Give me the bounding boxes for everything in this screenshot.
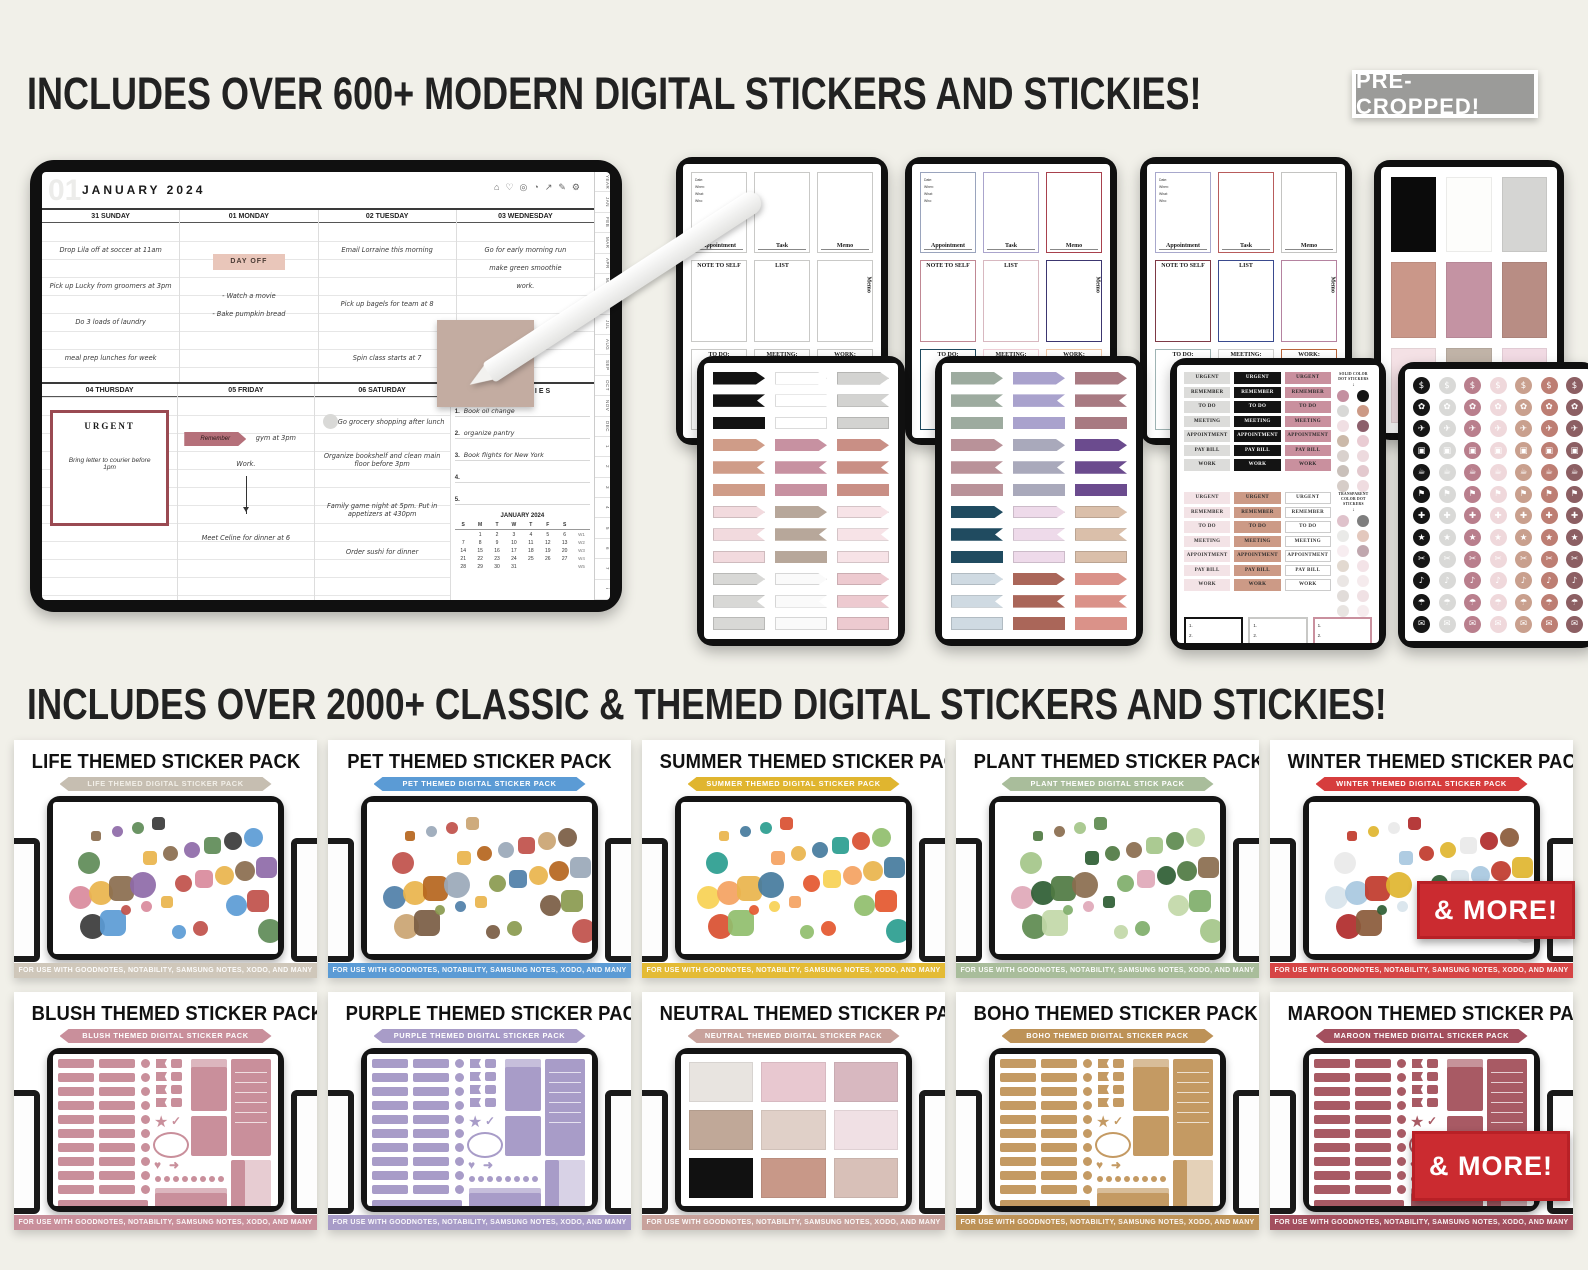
basket-icon: ☕ (1566, 464, 1583, 481)
sticker (1386, 872, 1412, 898)
side-tab: NOV (595, 396, 610, 416)
flag-sticker (951, 617, 1003, 630)
flag-sticker (775, 617, 827, 630)
pill-sticker (1041, 1087, 1077, 1096)
drinks-icon: ♪ (1413, 572, 1430, 589)
side-tablet-fragment (956, 838, 982, 962)
dot-sticker (1142, 1176, 1148, 1182)
basket-icon: ☕ (1464, 464, 1481, 481)
compatibility-bar: FOR USE WITH GOODNOTES, NOTABILITY, SAMS… (14, 963, 317, 978)
pill-sticker (1314, 1101, 1350, 1110)
dot-sticker (1357, 405, 1369, 417)
flag-sticker (713, 417, 765, 430)
sticker (457, 851, 471, 865)
sticker (1388, 822, 1400, 834)
square-sticky (1391, 262, 1436, 337)
pack-title: SUMMER THEMED STICKER PACK (660, 751, 928, 774)
dot-sticker (164, 1176, 170, 1182)
circle-sticker (455, 1101, 464, 1110)
sticker (141, 901, 152, 912)
sticky-template: NOTE TO SELF (1155, 260, 1211, 341)
circle-sticker (455, 1157, 464, 1166)
side-tablet-fragment (1233, 838, 1259, 962)
flag-sticker (156, 1098, 167, 1107)
dot-sticker (1106, 1176, 1112, 1182)
dot-stickers-note: TRANSPARENT COLOR DOT STICKERS (1335, 492, 1372, 507)
compatibility-bar: FOR USE WITH GOODNOTES, NOTABILITY, SAMS… (14, 1215, 317, 1230)
label-sticker: WORK (1234, 459, 1280, 471)
flag-sticker (1075, 573, 1127, 586)
pill-sticker (372, 1059, 408, 1068)
circle-sticker (141, 1087, 150, 1096)
flag-sticker (837, 484, 889, 497)
day-off-sticker: DAY OFF (213, 254, 285, 270)
dot-sticker (487, 1176, 493, 1182)
dot-sticker (1337, 605, 1349, 617)
sticker (132, 822, 144, 834)
dot-sticker (173, 1176, 179, 1182)
flag-sticker (1098, 1098, 1109, 1107)
sticker-pack-card: WINTER THEMED STICKER PACKWINTER THEMED … (1270, 740, 1573, 978)
label-sticker: URGENT (1234, 372, 1280, 384)
sticker (383, 886, 406, 909)
label-sticker: URGENT (1184, 372, 1230, 384)
pack-title: PET THEMED STICKER PACK (346, 751, 614, 774)
timer-icon: ◔ (533, 182, 544, 192)
check-sticker: ✓ (1113, 1114, 1123, 1128)
pack-tablet: ★✓♥➜ (361, 1048, 598, 1212)
star-icon: ★ (1566, 529, 1583, 546)
pill-sticker (1041, 1073, 1077, 1082)
side-tab: JUL (595, 315, 610, 335)
sticker (475, 896, 487, 908)
pill-sticker (413, 1171, 449, 1180)
drinks-icon: ♪ (1515, 572, 1532, 589)
luggage-icon: ▣ (1490, 442, 1507, 459)
pill-sticker (58, 1143, 94, 1152)
flag-sticker (775, 417, 827, 430)
flag-sticker (1075, 506, 1127, 519)
sticker (446, 822, 458, 834)
sticker-pack-card: SUMMER THEMED STICKER PACKSUMMER THEMED … (642, 740, 945, 978)
sticker (172, 925, 186, 939)
dot-sticker (1337, 480, 1349, 492)
sticker (1408, 817, 1421, 830)
star-sticker: ★ (154, 1112, 168, 1132)
compatibility-bar: FOR USE WITH GOODNOTES, NOTABILITY, SAMS… (1270, 963, 1573, 978)
heart-icon: ♡ (505, 182, 519, 192)
sticker (121, 905, 131, 915)
flag-sticker (1075, 461, 1127, 474)
sticker-collage (367, 802, 592, 954)
flag-sticker (713, 617, 765, 630)
sticker-pack-card: BLUSH THEMED STICKER PACKBLUSH THEMED DI… (14, 992, 317, 1230)
dot-sticker (1357, 545, 1369, 557)
dot-stickers-note: SOLID COLOR DOT STICKERS (1335, 372, 1372, 382)
pill-sticker (99, 1143, 135, 1152)
luggage-icon: ▣ (1515, 442, 1532, 459)
flag-sticker (713, 461, 765, 474)
check-sticker: ✓ (1427, 1114, 1437, 1128)
dot-sticker (218, 1176, 224, 1182)
sticker (91, 831, 101, 841)
pill-sticker (413, 1115, 449, 1124)
pill-sticker (1000, 1101, 1036, 1110)
note: Drop Lila off at soccer at 11am (44, 246, 177, 254)
pill-sticker (1000, 1115, 1036, 1124)
sticker (1189, 890, 1211, 912)
side-tablet-fragment (1270, 838, 1296, 962)
label-stickers-tablet: URGENTREMEMBERTO DOMEETINGAPPOINTMENTPAY… (1170, 358, 1386, 650)
circle-sticker (141, 1185, 150, 1194)
dollar-icon: $ (1413, 377, 1430, 394)
pill-sticker (58, 1087, 94, 1096)
circle-sticker (1083, 1171, 1092, 1180)
label-sticker: WORK (1184, 579, 1230, 591)
flag-sticker (775, 461, 827, 474)
dot-sticker (1357, 450, 1369, 462)
sticker (215, 866, 234, 885)
sticker (823, 870, 841, 888)
dot-sticker (1337, 515, 1349, 527)
square-sticker (171, 1059, 182, 1068)
sticker (405, 831, 415, 841)
pack-title: PURPLE THEMED STICKER PACK (346, 1003, 614, 1026)
label-sticker: MEETING (1234, 416, 1280, 428)
note: Organize bookshelf and clean main floor … (317, 452, 448, 468)
flag-sticker (1412, 1085, 1423, 1094)
check-sticker: ✓ (171, 1114, 181, 1128)
flag-sticker (837, 528, 889, 541)
side-tab: 5 (595, 518, 610, 538)
coffee-icon: ☂ (1413, 594, 1430, 611)
pill-sticker (1355, 1073, 1391, 1082)
circle-sticker (1083, 1129, 1092, 1138)
sticker (161, 896, 173, 908)
pill-sticker (413, 1143, 449, 1152)
dot-sticker (1357, 390, 1369, 402)
square-sticker (171, 1085, 182, 1094)
flag-sticker (1098, 1059, 1109, 1068)
sticker-pack-card: PLANT THEMED STICKER PACKPLANT THEMED DI… (956, 740, 1259, 978)
heart-sticker: ♥ (154, 1158, 161, 1172)
note: meal prep lunches for week (44, 354, 177, 362)
pill-sticker (1000, 1171, 1036, 1180)
flag-sticker (1013, 617, 1065, 630)
sticky-template: Memo (817, 172, 873, 253)
flag-sticker (775, 595, 827, 608)
cake-icon: ✉ (1541, 616, 1558, 633)
side-tablet-fragment (14, 838, 40, 962)
fitness-icon: ✂ (1413, 551, 1430, 568)
dollar-icon: $ (1566, 377, 1583, 394)
note-box-sticker (191, 1059, 227, 1111)
health-icon: ✚ (1464, 507, 1481, 524)
day-friday: 05 FRIDAY Remember gym at 3pm Work. Meet… (178, 384, 314, 600)
star-sticker: ★ (1096, 1112, 1110, 1132)
dot-sticker (1357, 590, 1369, 602)
paw-icon: ✿ (1464, 399, 1481, 416)
dot-sticker (469, 1176, 475, 1182)
dot-sticker (1357, 560, 1369, 572)
circle-sticker (1083, 1059, 1092, 1068)
dot-sticker (1357, 420, 1369, 432)
flag-sticker (837, 617, 889, 630)
flag-sticker (1013, 528, 1065, 541)
dot-sticker (1337, 545, 1349, 557)
pill-sticker (372, 1200, 462, 1206)
more-badge: & MORE! (1417, 881, 1575, 939)
dot-sticker (1151, 1176, 1157, 1182)
pill-sticker (1314, 1087, 1350, 1096)
note-box-sticker (545, 1059, 585, 1156)
sticky-template: Task (983, 172, 1039, 253)
label-sticker: TO DO (1285, 401, 1331, 413)
flag-sticker (713, 528, 765, 541)
side-tab: MAR (595, 233, 610, 253)
label-sticker: MEETING (1285, 416, 1331, 428)
sticker (1063, 905, 1073, 915)
square-sticky (834, 1158, 898, 1198)
circle-sticker (141, 1059, 150, 1068)
pill-sticker (99, 1171, 135, 1180)
circle-sticker (141, 1129, 150, 1138)
sticker (489, 875, 506, 892)
sticker (1011, 886, 1034, 909)
paw-icon: ✿ (1490, 399, 1507, 416)
flag-sticker (1013, 439, 1065, 452)
flag-sticker (775, 551, 827, 564)
sticker (509, 870, 527, 888)
side-tab: 2 (595, 457, 610, 477)
pill-sticker (1355, 1143, 1391, 1152)
sticker (256, 857, 277, 878)
sticker-collage (995, 802, 1220, 954)
side-tab: JAN (595, 192, 610, 212)
sticker-collage (53, 802, 278, 954)
sticker (771, 851, 785, 865)
sticker (1146, 837, 1163, 854)
flag-sticker (713, 484, 765, 497)
flag-sticker (156, 1072, 167, 1081)
pack-title: LIFE THEMED STICKER PACK (32, 751, 300, 774)
flag-sticker (837, 506, 889, 519)
pill-sticker (1314, 1115, 1350, 1124)
sticky-template: Memo (1046, 260, 1102, 341)
sticker (444, 872, 470, 898)
circle-sticker (1397, 1171, 1406, 1180)
sticker (486, 925, 500, 939)
sticker (706, 852, 728, 874)
fitness-icon: ✂ (1515, 551, 1532, 568)
note-box-sticker (505, 1059, 541, 1111)
sticker (1397, 901, 1408, 912)
dot-sticker (1160, 1176, 1166, 1182)
pill-sticker (1041, 1185, 1077, 1194)
sticker (184, 842, 200, 858)
square-sticker (1113, 1098, 1124, 1107)
circle-sticker (141, 1101, 150, 1110)
circle-sticker (1397, 1143, 1406, 1152)
star-icon: ★ (1439, 529, 1456, 546)
pill-sticker (99, 1157, 135, 1166)
circle-sticker (455, 1185, 464, 1194)
side-tab: 6 (595, 539, 610, 559)
luggage-icon: ▣ (1464, 442, 1481, 459)
pill-sticker (99, 1129, 135, 1138)
star-sticker: ★ (468, 1112, 482, 1132)
sticker (258, 919, 278, 943)
flag-sticker (1013, 394, 1065, 407)
sticker (1460, 837, 1477, 854)
note-box-sticker (505, 1116, 541, 1156)
fitness-icon: ✂ (1464, 551, 1481, 568)
sticker (760, 822, 772, 834)
planner-side-tabs: YEARJANFEBMARAPRMAYJUNJULAUGSEPOCTNOVDEC… (594, 172, 610, 600)
coffee-icon: ☂ (1490, 594, 1507, 611)
sticker (1094, 817, 1107, 830)
utensils-icon: ⚑ (1464, 486, 1481, 503)
label-sticker: REMEMBER (1285, 387, 1331, 399)
sticker (854, 895, 875, 916)
urgent-sticky: URGENT Bring letter to courier before 1p… (50, 410, 169, 526)
pack-banner: PET THEMED DIGITAL STICKER PACK (374, 777, 586, 791)
sticker (1198, 857, 1219, 878)
airplane-icon: ✈ (1413, 420, 1430, 437)
pill-sticker (58, 1073, 94, 1082)
circle-sticker (141, 1073, 150, 1082)
flag-sticker (1013, 551, 1065, 564)
flag-sticker (951, 394, 1003, 407)
paw-icon: ✿ (1439, 399, 1456, 416)
circle-sticker (1083, 1087, 1092, 1096)
flag-sticker (1075, 439, 1127, 452)
sticky-template: Memo (1046, 172, 1102, 253)
pack-banner: LIFE THEMED DIGITAL STICKER PACK (60, 777, 272, 791)
month-title: JANUARY 2024 (82, 183, 205, 197)
pill-sticker (1000, 1087, 1036, 1096)
sticker (518, 837, 535, 854)
note-box-sticker (1133, 1116, 1169, 1156)
circle-sticker (455, 1129, 464, 1138)
sticker (247, 890, 269, 912)
sticker (175, 875, 192, 892)
coffee-icon: ☂ (1566, 594, 1583, 611)
sticker (195, 870, 213, 888)
square-sticker (1113, 1085, 1124, 1094)
note: Pick up bagels for team at 8 (321, 300, 454, 308)
pill-sticker (58, 1101, 94, 1110)
basket-icon: ☕ (1490, 464, 1507, 481)
sticker (540, 895, 561, 916)
sticky-template: Task (754, 172, 810, 253)
pill-sticker (413, 1157, 449, 1166)
flag-sticker (1013, 595, 1065, 608)
headphones-icon: ◎ (520, 182, 534, 192)
pill-sticker (58, 1185, 94, 1194)
sticker (1117, 875, 1134, 892)
pen-icon: ✎ (558, 182, 572, 192)
side-tab: AUG (595, 335, 610, 355)
home-icon: ⌂ (494, 182, 505, 192)
sticky-template: NOTE TO SELF (691, 260, 747, 341)
dot-sticker (1337, 530, 1349, 542)
dot-sticker (478, 1176, 484, 1182)
cake-icon: ✉ (1464, 616, 1481, 633)
sticker (466, 817, 479, 830)
pill-sticker (1355, 1059, 1391, 1068)
sticker (749, 905, 759, 915)
side-tablet-fragment (605, 838, 631, 962)
planner-header: 01 JANUARY 2024 ⌂♡◎◔↗✎⚙ (42, 172, 594, 210)
label-sticker: APPOINTMENT (1184, 550, 1230, 562)
note: Do 3 loads of laundry (44, 318, 177, 326)
flag-sticker (1412, 1059, 1423, 1068)
flag-sticker (1013, 461, 1065, 474)
pill-sticker (58, 1171, 94, 1180)
note: Pick up Lucky from groomers at 3pm (44, 282, 177, 290)
sticky-template: LIST (754, 260, 810, 341)
sticker (1177, 861, 1197, 881)
pack-banner: MAROON THEMED DIGITAL STICKER PACK (1316, 1029, 1528, 1043)
pill-sticker (1355, 1087, 1391, 1096)
drinks-icon: ♪ (1541, 572, 1558, 589)
airplane-icon: ✈ (1541, 420, 1558, 437)
numbered-list-sticky: 1.2.3. (1313, 617, 1372, 643)
dot-sticker (1337, 450, 1349, 462)
sticker (1033, 831, 1043, 841)
note: make green smoothie (459, 264, 592, 272)
side-tablet-fragment (14, 1090, 40, 1214)
pill-sticker (372, 1143, 408, 1152)
dollar-icon: $ (1464, 377, 1481, 394)
check-sticker: ✓ (485, 1114, 495, 1128)
circle-sticker (455, 1059, 464, 1068)
label-sticker: REMEMBER (1184, 507, 1230, 519)
dot-sticker (1357, 515, 1369, 527)
flag-sticker (713, 573, 765, 586)
pill-sticker (1041, 1171, 1077, 1180)
sticker (1157, 866, 1176, 885)
label-sticker: URGENT (1184, 492, 1230, 504)
circle-sticker (1083, 1101, 1092, 1110)
circle-sticker (141, 1171, 150, 1180)
pill-sticker (372, 1171, 408, 1180)
circle-sticker (1397, 1115, 1406, 1124)
sticker (875, 890, 897, 912)
star-icon: ★ (1515, 529, 1532, 546)
side-tab: 3 (595, 478, 610, 498)
basket-icon: ☕ (1515, 464, 1532, 481)
note: gym at 3pm (238, 434, 313, 442)
sticker (1020, 852, 1042, 874)
pill-sticker (1314, 1171, 1350, 1180)
note-box-sticker (231, 1059, 271, 1156)
utensils-icon: ⚑ (1566, 486, 1583, 503)
health-icon: ✚ (1439, 507, 1456, 524)
day-thursday: 04 THURSDAY URGENT Bring letter to couri… (42, 384, 178, 600)
basket-icon: ☕ (1413, 464, 1430, 481)
pill-sticker (99, 1115, 135, 1124)
flag-sticker (1075, 551, 1127, 564)
square-sticker (485, 1098, 496, 1107)
dot-sticker (514, 1176, 520, 1182)
flag-sticker (1013, 417, 1065, 430)
dot-sticker (1357, 575, 1369, 587)
flag-sticker (470, 1085, 481, 1094)
square-sticker (1113, 1059, 1124, 1068)
label-sticker: REMEMBER (1184, 387, 1230, 399)
